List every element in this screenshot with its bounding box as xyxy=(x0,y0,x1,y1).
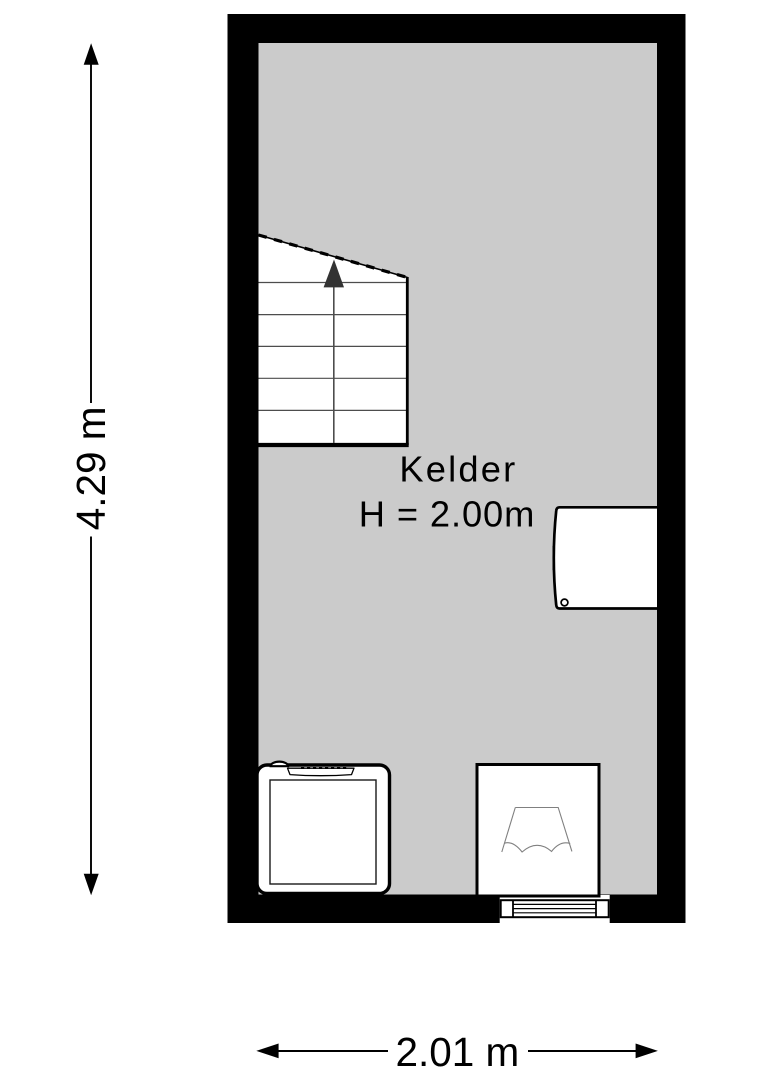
svg-text:2.01 m: 2.01 m xyxy=(395,1029,519,1075)
svg-text:H = 2.00m: H = 2.00m xyxy=(359,494,536,535)
svg-text:Kelder: Kelder xyxy=(399,449,517,490)
svg-text:4.29 m: 4.29 m xyxy=(68,406,114,530)
